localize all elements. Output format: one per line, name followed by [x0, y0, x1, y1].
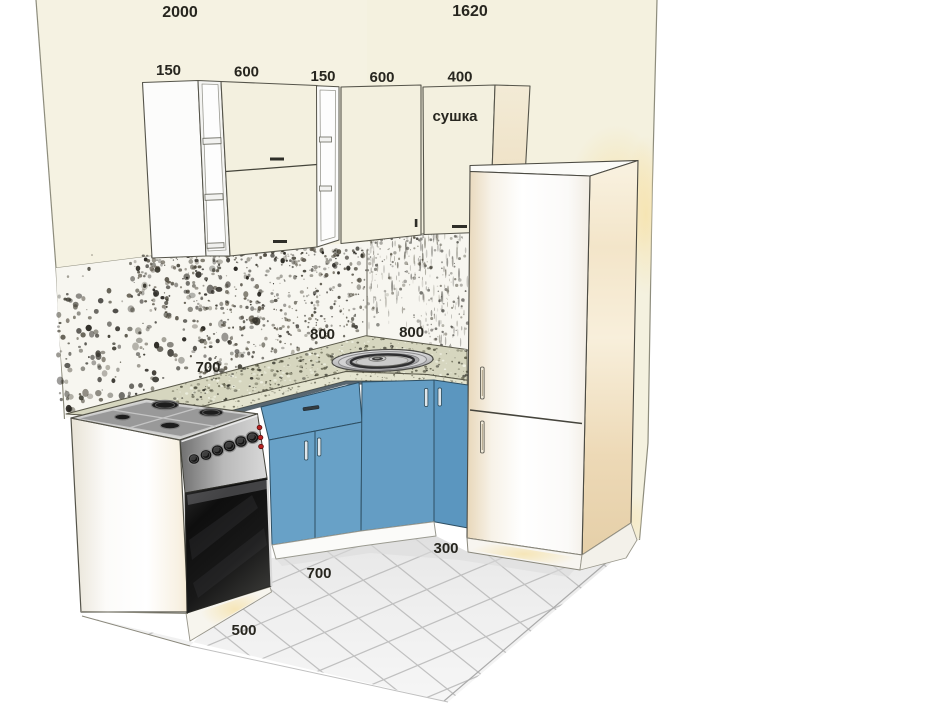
svg-text:150: 150	[156, 62, 181, 79]
svg-text:800: 800	[310, 326, 335, 343]
svg-text:сушка: сушка	[432, 108, 478, 125]
svg-text:400: 400	[447, 69, 472, 86]
svg-text:500: 500	[231, 622, 256, 639]
svg-text:700: 700	[195, 359, 220, 376]
svg-text:1620: 1620	[452, 3, 488, 20]
svg-text:2000: 2000	[162, 4, 198, 21]
svg-text:150: 150	[310, 68, 335, 85]
svg-text:600: 600	[234, 64, 259, 81]
svg-text:700: 700	[306, 565, 331, 582]
svg-text:300: 300	[433, 540, 458, 557]
svg-text:800: 800	[399, 324, 424, 341]
svg-text:600: 600	[369, 69, 394, 86]
